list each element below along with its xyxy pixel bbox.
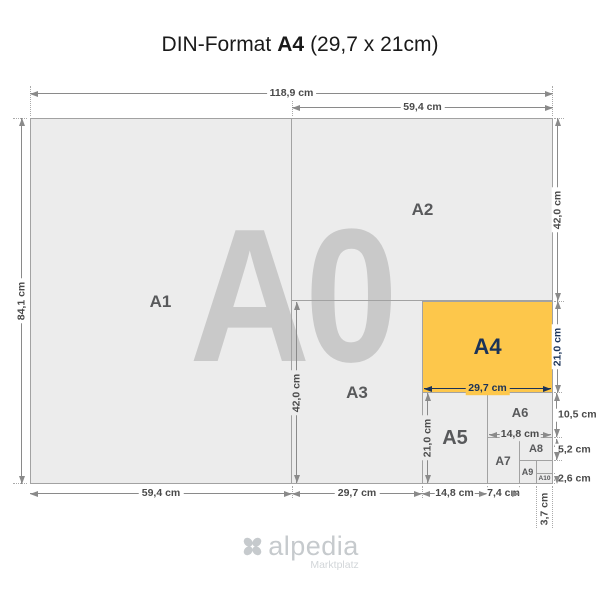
dim-total-width-label: 118,9 cm [267,87,317,100]
footer-logo: alpedia Marktplatz [241,533,359,571]
dim-a3-width-bottom-label: 29,7 cm [335,487,380,500]
dim-a10-height-right-label: 2,6 cm [555,472,594,485]
dim-a6-height-right-label: 10,5 cm [555,409,600,422]
dim-total-height: 84,1 cm [21,118,22,484]
title-prefix: DIN-Format [162,33,272,56]
paper-a2: A2 [292,118,553,301]
dim-a2-height-right-label: 42,0 cm [552,187,565,232]
paper-a3: A3 [292,301,422,484]
dim-a5-width-bottom: 14,8 cm [422,493,487,494]
dim-a1-width-bottom: 59,4 cm [30,493,292,494]
paper-a7: A7 [487,438,520,484]
flower-icon [241,535,264,558]
paper-a1: A1 [30,118,292,484]
dim-a8-height-right-label: 5,2 cm [555,443,594,456]
dim-a3-height-inner: 42,0 cm [296,302,297,483]
dim-a6-width-inner: 14,8 cm [489,434,551,435]
paper-a8: A8 [519,438,553,461]
dim-a8-height-right: 5,2 cm [556,439,557,460]
paper-a10: A10 [536,473,553,484]
dim-a2-width-top-label: 59,4 cm [400,101,445,114]
paper-a3-label: A3 [292,301,422,484]
dim-a2-height-right: 42,0 cm [557,118,558,301]
dim-a3-width-bottom: 29,7 cm [292,493,422,494]
paper-a9-label: A9 [519,461,536,484]
brand-tagline: Marktplatz [241,559,359,571]
extension-line [552,486,553,528]
dim-a5-width-bottom-label: 14,8 cm [434,487,475,500]
dim-total-height-label: 84,1 cm [16,279,29,324]
dim-a4-width-inner: 29,7 cm [424,388,551,389]
extension-line [536,486,537,528]
paper-a9: A9 [519,461,537,484]
dim-a5-height-inner: 21,0 cm [427,393,428,483]
dim-a9-width-bottom-label: 3,7 cm [539,493,552,526]
paper-a8-label: A8 [519,438,553,460]
extension-line [554,460,562,461]
paper-a10-label: A10 [536,474,553,484]
dim-a7-width-bottom: 7,4 cm [487,493,520,494]
dim-a4-width-inner-label: 29,7 cm [465,382,510,395]
dim-a6-height-right: 10,5 cm [556,393,557,437]
brand-name: alpedia [268,533,359,560]
footer: alpedia Marktplatz [0,533,600,571]
page-title: DIN-FormatA4(29,7 x 21cm) [0,33,600,57]
paper-a2-label: A2 [292,118,553,300]
din-format-diagram: DIN-FormatA4(29,7 x 21cm) A0 A1 A2 A3 A4… [0,0,600,600]
title-format-emphasis: A4 [277,33,304,56]
dim-a4-height-right-label: 21,0 cm [552,325,565,370]
dim-a5-height-inner-label: 21,0 cm [422,416,435,461]
dim-a6-width-inner-label: 14,8 cm [500,428,541,441]
dim-a10-height-right: 2,6 cm [556,473,557,484]
paper-a4-highlighted: A4 [422,301,553,393]
dim-a2-width-top: 59,4 cm [292,107,553,108]
paper-a4-label: A4 [423,302,552,392]
title-dimensions: (29,7 x 21cm) [310,33,438,56]
extension-line [554,437,562,438]
dim-a1-width-bottom-label: 59,4 cm [139,487,184,500]
paper-a1-label: A1 [30,118,291,484]
dim-a7-width-bottom-label: 7,4 cm [486,487,521,500]
dim-a4-height-right: 21,0 cm [557,301,558,393]
dim-a3-height-inner-label: 42,0 cm [291,370,304,415]
dim-total-width: 118,9 cm [30,93,553,94]
paper-a7-label: A7 [487,438,519,484]
